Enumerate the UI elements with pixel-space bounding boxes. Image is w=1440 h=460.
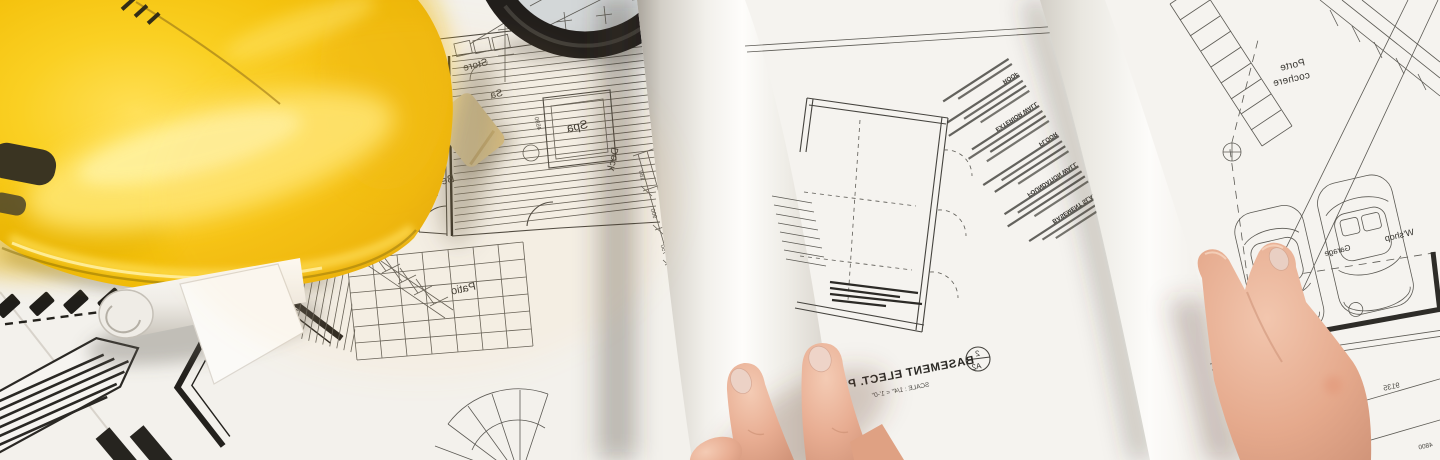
photo-architect-workspace: 4.0 X [0, 0, 1440, 460]
knuckle-blush [1324, 376, 1342, 394]
warm-light-cast [160, 20, 680, 380]
